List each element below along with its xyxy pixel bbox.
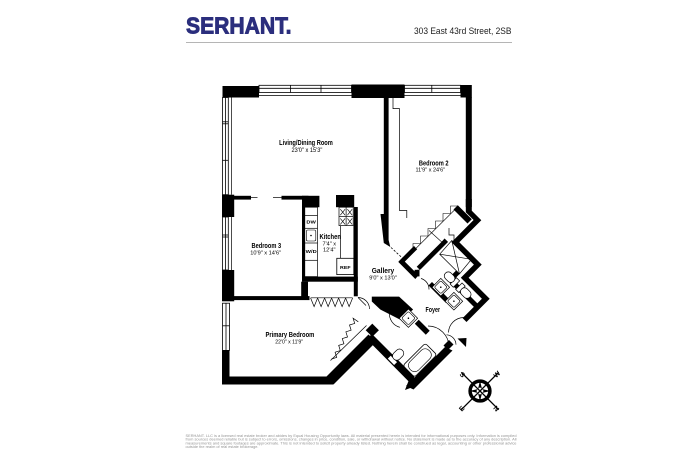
svg-text:23'0" x 15'3": 23'0" x 15'3" bbox=[291, 148, 322, 154]
svg-text:SERHANT.: SERHANT. bbox=[186, 13, 292, 39]
svg-text:10'9" x 14'6": 10'9" x 14'6" bbox=[250, 250, 281, 256]
svg-text:DW: DW bbox=[306, 219, 316, 225]
svg-text:303 East 43rd Street, 2SB: 303 East 43rd Street, 2SB bbox=[414, 26, 512, 36]
svg-text:11'9" x 24'6": 11'9" x 24'6" bbox=[415, 168, 445, 174]
svg-text:Gallery: Gallery bbox=[372, 268, 395, 275]
svg-text:22'0" x 11'9": 22'0" x 11'9" bbox=[275, 339, 303, 345]
svg-text:Primary Bedroom: Primary Bedroom bbox=[266, 330, 315, 339]
svg-text:REF: REF bbox=[340, 265, 351, 271]
svg-text:outside the realm of real esta: outside the realm of real estate brokera… bbox=[186, 445, 259, 449]
svg-text:W/D: W/D bbox=[306, 249, 318, 255]
svg-text:Kitchen: Kitchen bbox=[320, 234, 341, 241]
svg-text:Bedroom 3: Bedroom 3 bbox=[252, 243, 282, 250]
svg-text:12'4": 12'4" bbox=[323, 247, 336, 253]
svg-text:Foyer: Foyer bbox=[426, 307, 441, 314]
svg-text:Living/Dining Room: Living/Dining Room bbox=[279, 138, 333, 147]
svg-text:Bedroom 2: Bedroom 2 bbox=[419, 159, 449, 168]
svg-text:9'0" x 13'0": 9'0" x 13'0" bbox=[369, 276, 397, 282]
